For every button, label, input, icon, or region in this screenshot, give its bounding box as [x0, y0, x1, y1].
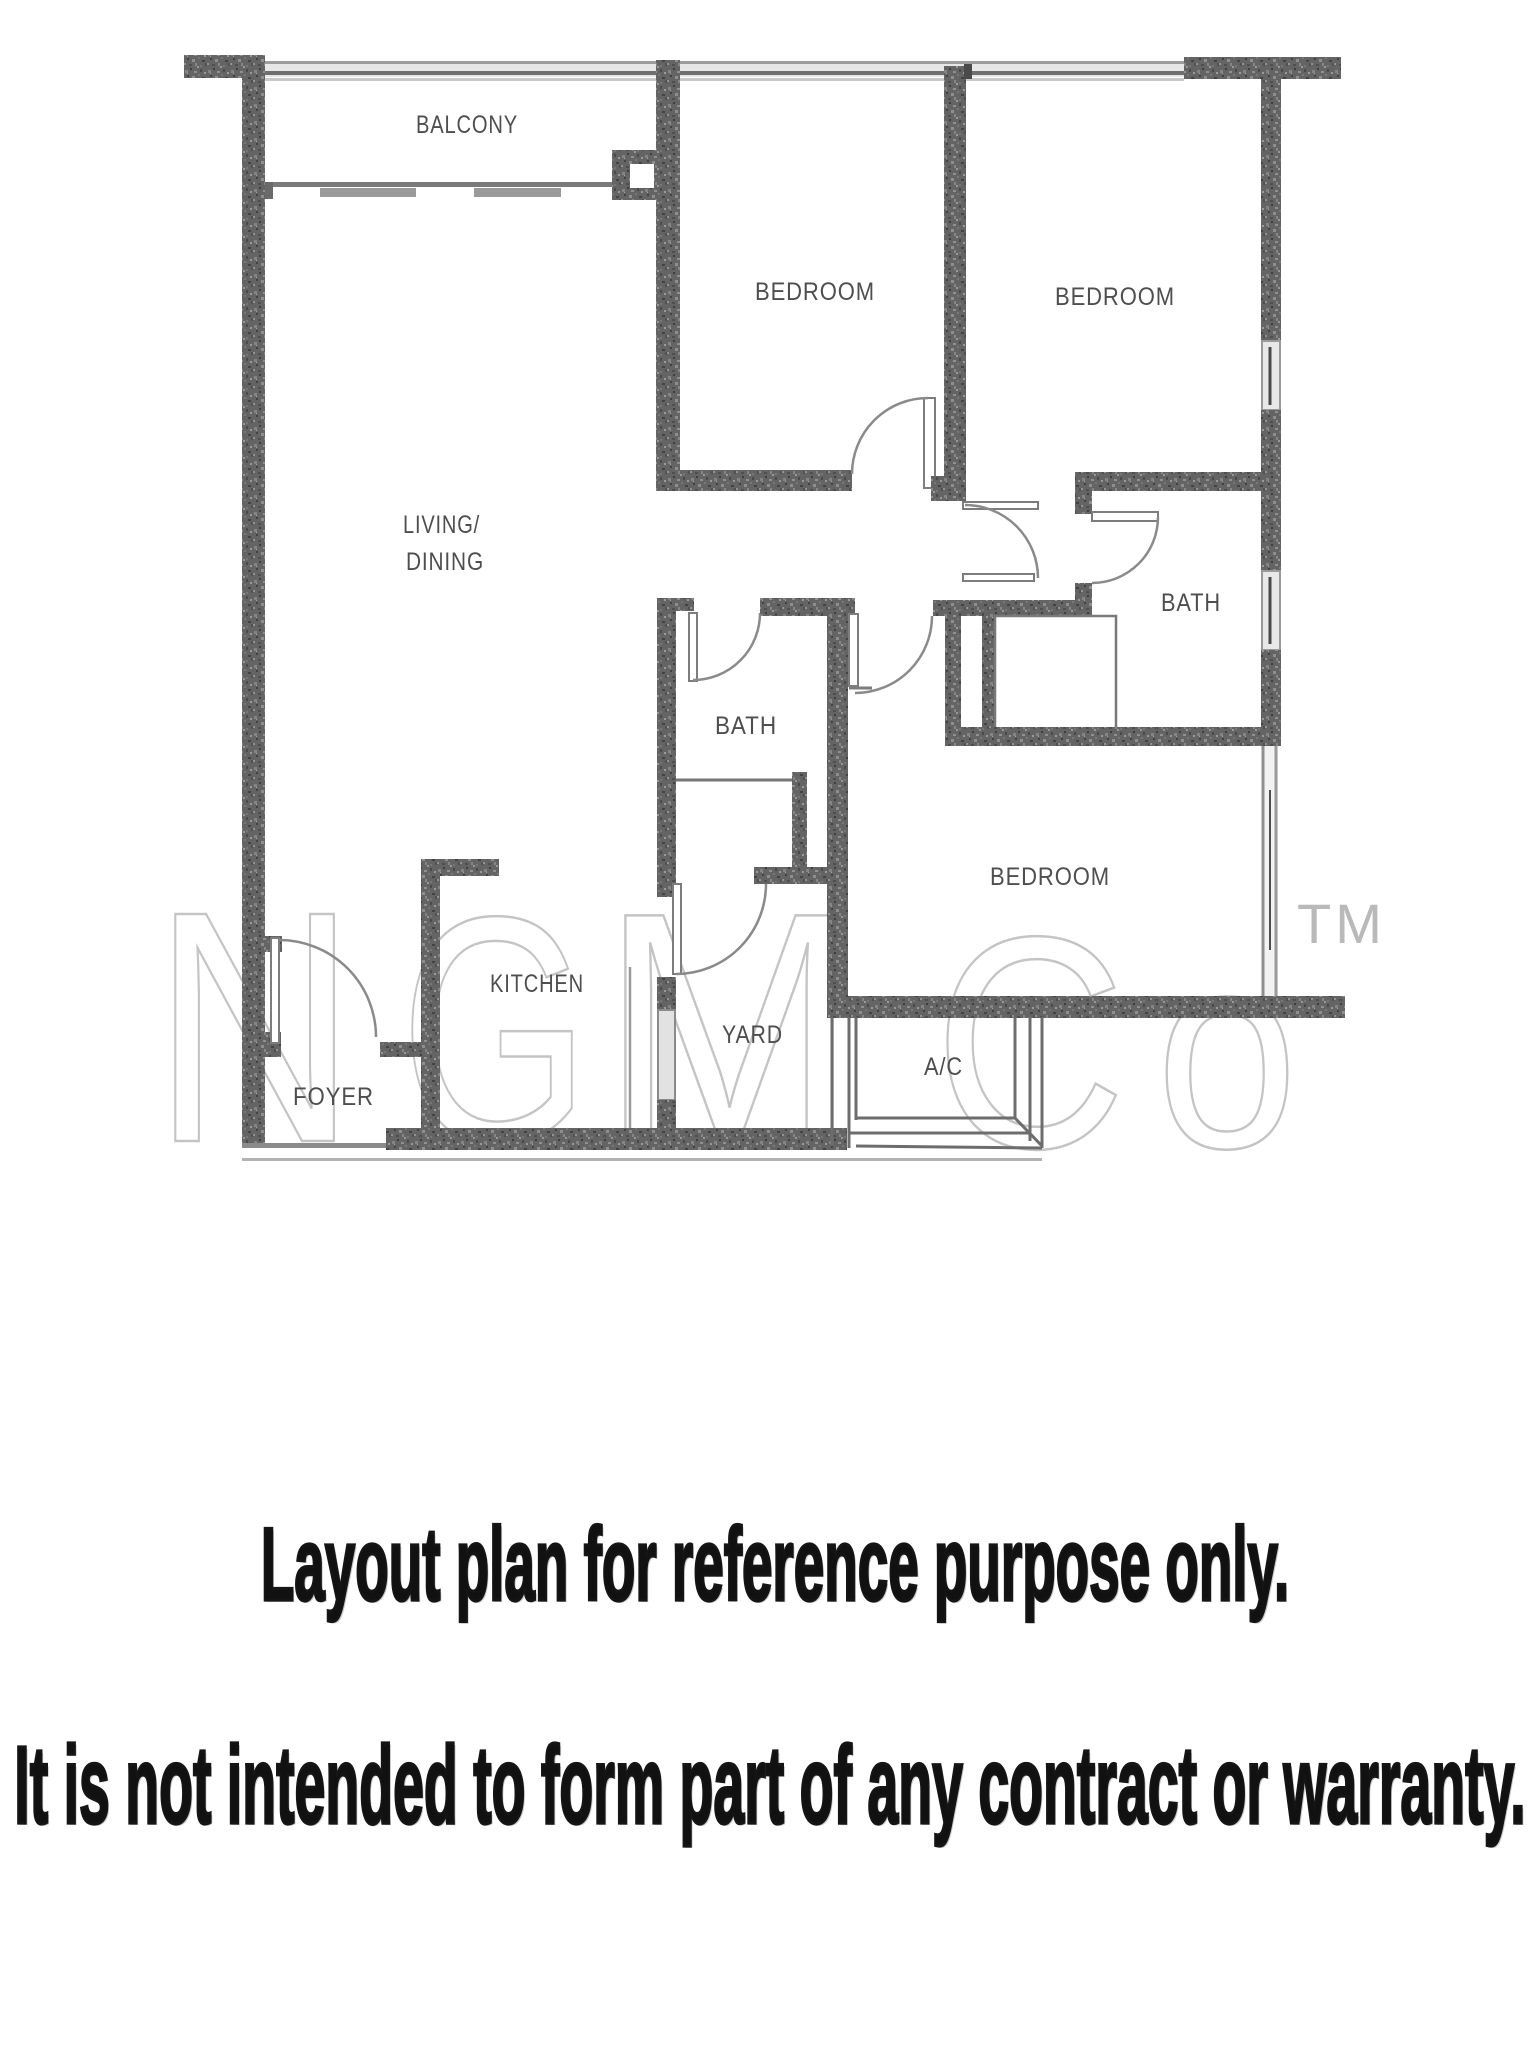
svg-text:LIVING/: LIVING/ — [403, 511, 480, 539]
svg-text:BATH: BATH — [715, 712, 777, 740]
svg-text:BEDROOM: BEDROOM — [755, 278, 875, 306]
svg-text:DINING: DINING — [406, 548, 484, 576]
svg-text:YARD: YARD — [722, 1021, 783, 1049]
svg-text:TM: TM — [1297, 892, 1386, 955]
svg-text:A/C: A/C — [924, 1053, 963, 1081]
svg-text:BEDROOM: BEDROOM — [990, 863, 1110, 891]
svg-text:KITCHEN: KITCHEN — [490, 970, 584, 998]
svg-text:BATH: BATH — [1161, 589, 1221, 617]
svg-text:FOYER: FOYER — [293, 1083, 374, 1111]
svg-text:BEDROOM: BEDROOM — [1055, 283, 1175, 311]
svg-text:BALCONY: BALCONY — [416, 111, 518, 139]
